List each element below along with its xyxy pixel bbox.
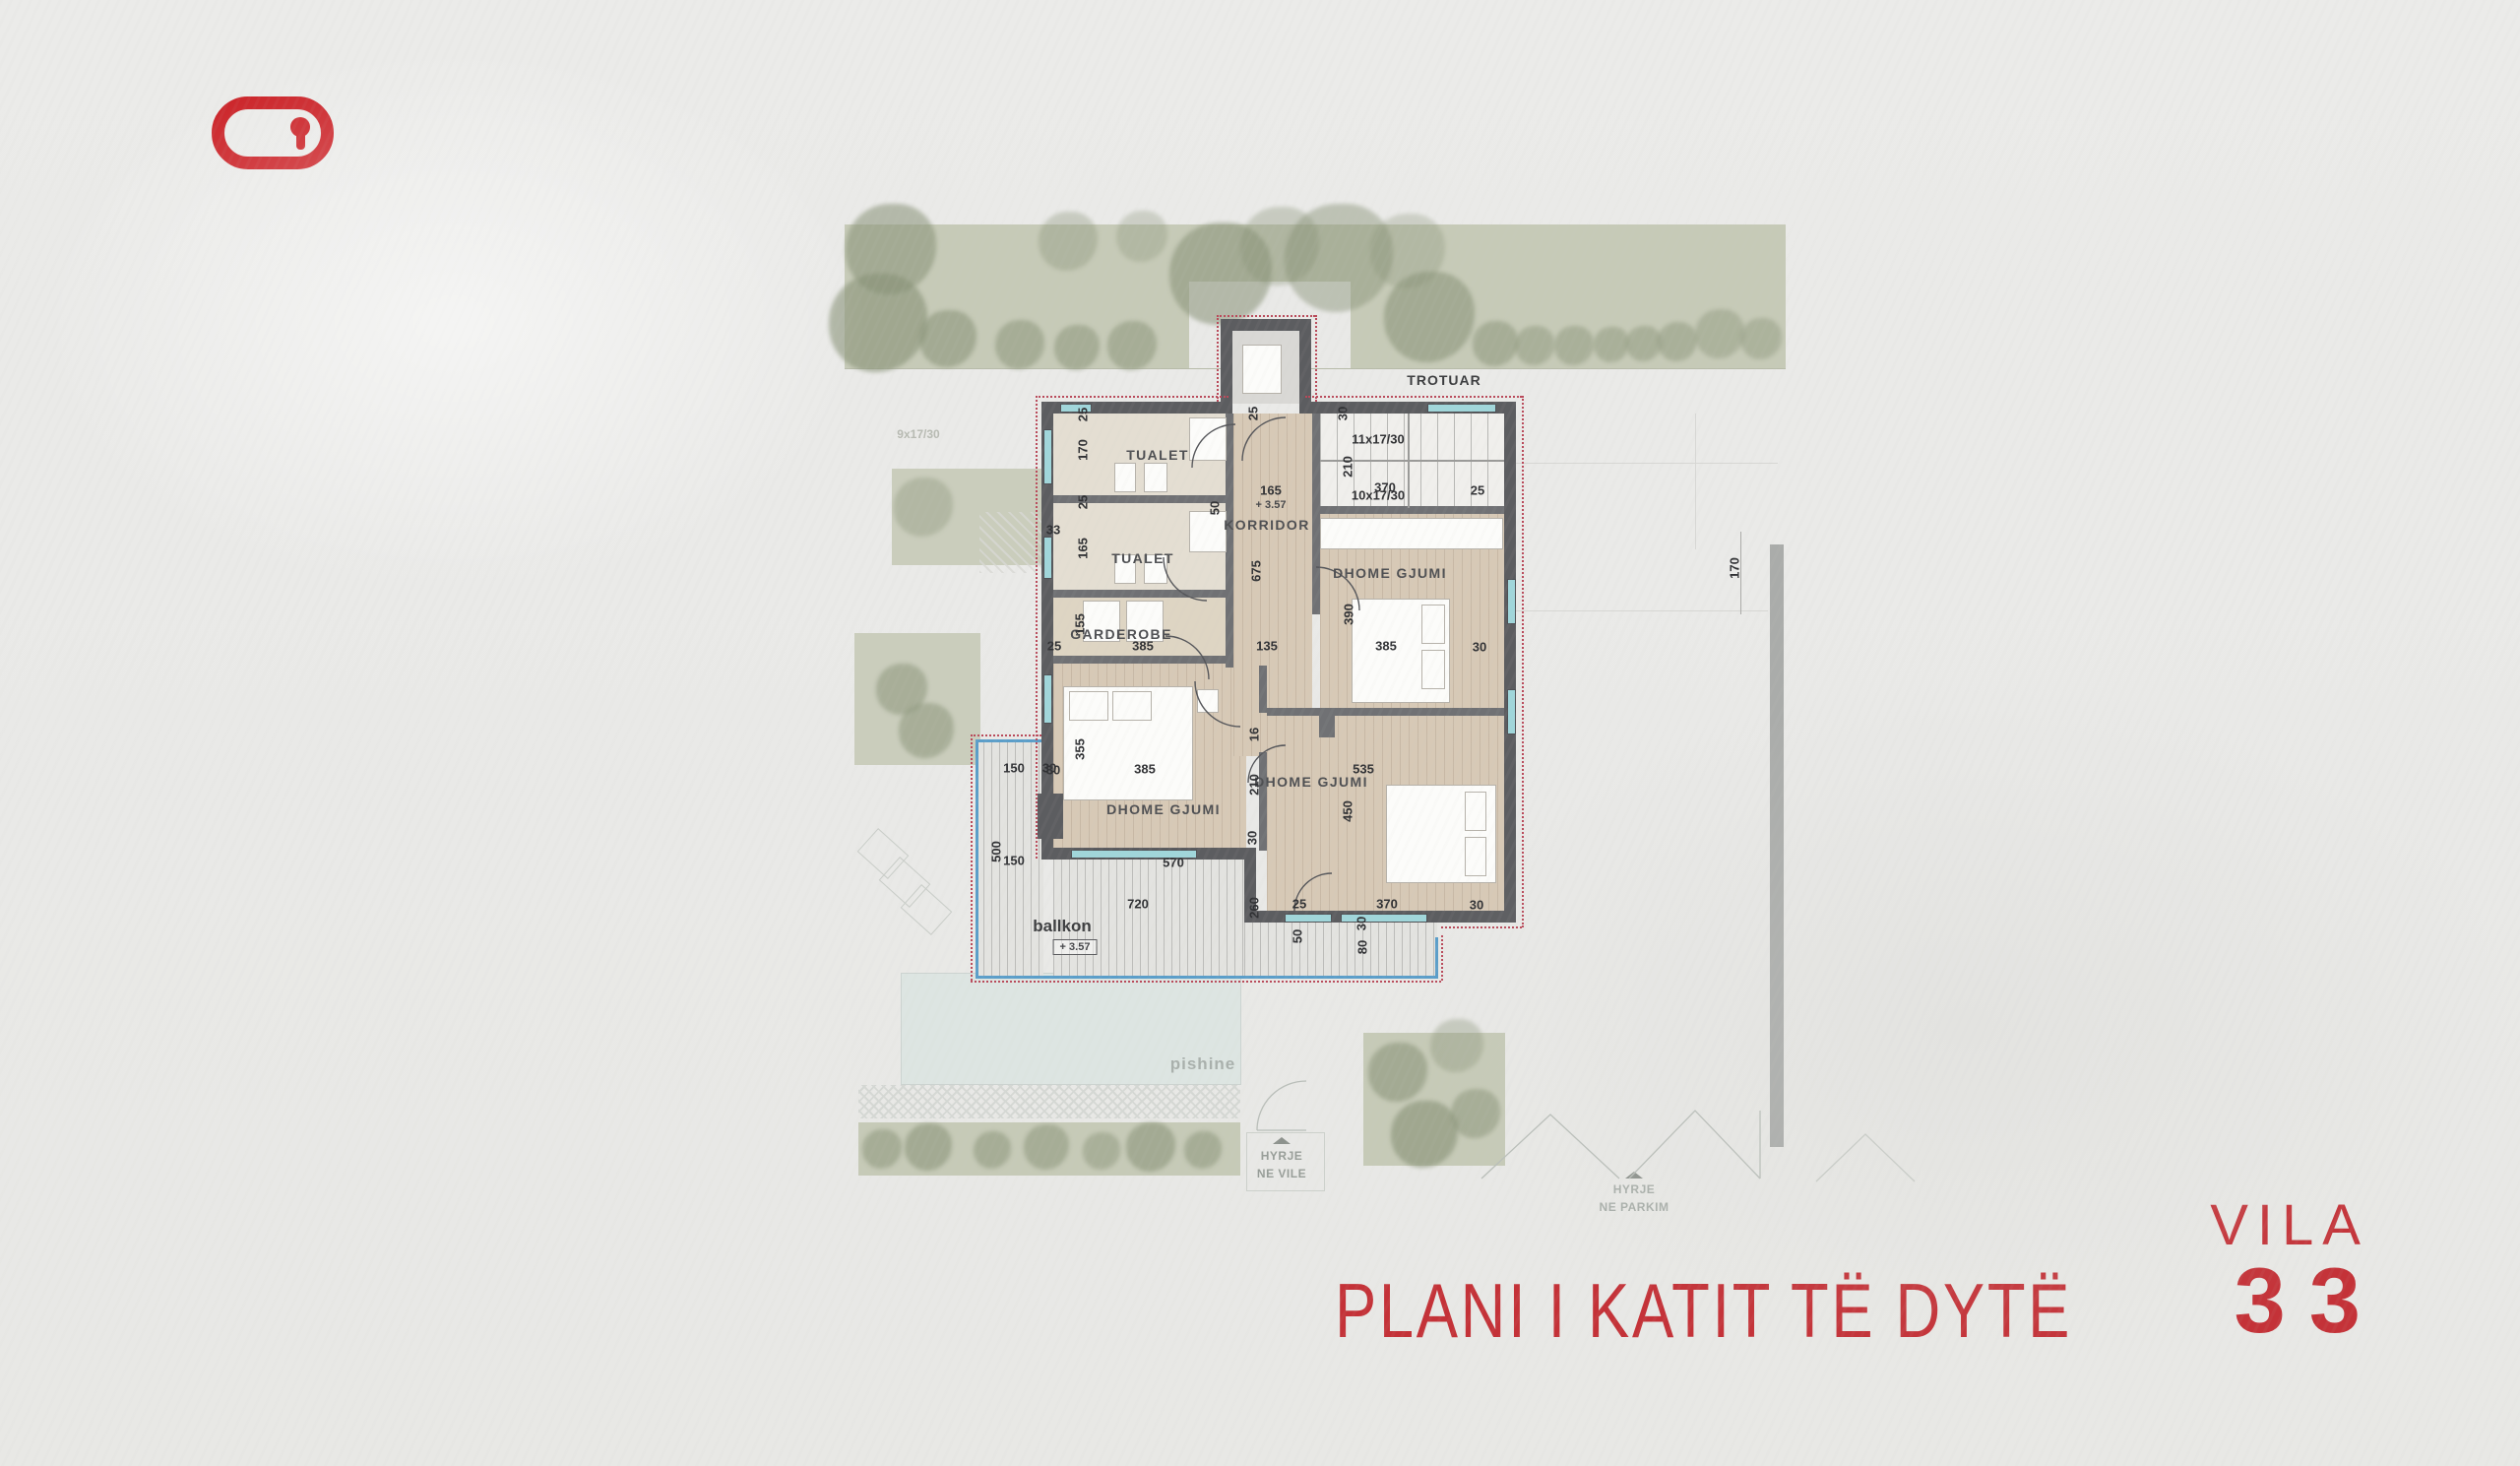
gate-and-ramp-lines bbox=[1257, 1081, 1915, 1181]
dimension-label: 170 bbox=[1728, 557, 1742, 579]
dimension-label: 30 bbox=[1473, 640, 1486, 655]
entry-label: NE VILE bbox=[1257, 1167, 1306, 1180]
dimension-label: 30 bbox=[1042, 761, 1056, 776]
dimension-label: 260 bbox=[1247, 897, 1262, 919]
entry-label: HYRJE bbox=[1261, 1149, 1303, 1163]
dimension-label: 165 bbox=[1076, 538, 1091, 559]
entry-label: NE PARKIM bbox=[1600, 1200, 1669, 1214]
room-label: DHOME GJUMI bbox=[1106, 801, 1221, 817]
dimension-label: 170 bbox=[1076, 439, 1091, 461]
dimension-label: 675 bbox=[1249, 560, 1264, 582]
pool-label: pishine bbox=[1170, 1054, 1236, 1074]
vila-number: 33 bbox=[2210, 1256, 2384, 1344]
dimension-label: 370 bbox=[1376, 897, 1398, 912]
dimension-label: 25 bbox=[1047, 639, 1061, 654]
vila-caption: VILA 33 bbox=[2210, 1197, 2361, 1344]
dimension-label: 25 bbox=[1292, 897, 1306, 912]
dimension-label: 25 bbox=[1246, 407, 1261, 420]
dimension-label: 210 bbox=[1341, 456, 1355, 478]
dimension-label: 11x17/30 bbox=[1352, 432, 1405, 447]
dimension-label: 570 bbox=[1163, 856, 1184, 870]
balcony-label: ballkon bbox=[1033, 917, 1092, 936]
dimension-label: 370 bbox=[1374, 480, 1396, 495]
room-label: DHOME GJUMI bbox=[1333, 565, 1447, 581]
dimension-label: 150 bbox=[1003, 854, 1025, 868]
dimension-label: 50 bbox=[1208, 501, 1223, 515]
dimension-label: 135 bbox=[1256, 639, 1278, 654]
dimension-label: 30 bbox=[1354, 917, 1369, 930]
dimension-label: 50 bbox=[1291, 929, 1305, 943]
dimension-label: 385 bbox=[1134, 762, 1156, 777]
dimension-label: 30 bbox=[1336, 407, 1351, 420]
dimension-label: 385 bbox=[1375, 639, 1397, 654]
dimension-label: 25 bbox=[1076, 408, 1091, 421]
entry-label: HYRJE bbox=[1613, 1182, 1656, 1196]
dimension-label: 385 bbox=[1132, 639, 1154, 654]
dimension-label: 16 bbox=[1247, 728, 1262, 741]
dimension-label: 33 bbox=[1046, 523, 1060, 538]
dimension-label: 30 bbox=[1245, 831, 1260, 845]
room-label: TUALET bbox=[1126, 447, 1189, 463]
level-label: + 3.57 bbox=[1256, 499, 1287, 511]
dimension-label: 450 bbox=[1341, 800, 1355, 822]
dimension-label: 720 bbox=[1127, 897, 1149, 912]
dimension-label: 165 bbox=[1260, 483, 1282, 498]
room-label: DHOME GJUMI bbox=[1254, 774, 1368, 790]
dimension-label: 390 bbox=[1342, 604, 1356, 625]
dimension-label: 25 bbox=[1471, 483, 1484, 498]
dimension-label: 155 bbox=[1073, 613, 1088, 635]
dimension-label: 535 bbox=[1353, 762, 1374, 777]
vila-word: VILA bbox=[2210, 1197, 2369, 1254]
room-label: TUALET bbox=[1111, 550, 1174, 566]
dimension-label: 30 bbox=[1470, 898, 1483, 913]
level-label: + 3.57 bbox=[1053, 939, 1098, 955]
site-label: TROTUAR bbox=[1407, 372, 1480, 388]
stair-note: 9x17/30 bbox=[897, 427, 939, 441]
dimension-label: 150 bbox=[1003, 761, 1025, 776]
dimension-label: 355 bbox=[1073, 738, 1088, 760]
room-label: KORRIDOR bbox=[1224, 517, 1309, 533]
plan-title: PLANI I KATIT TË DYTË bbox=[1335, 1268, 2072, 1356]
floor-plan-canvas: TUALETTUALETGARDEROBEKORRIDORDHOME GJUMI… bbox=[0, 0, 2520, 1466]
dimension-label: 80 bbox=[1355, 940, 1370, 954]
dimension-label: 210 bbox=[1247, 774, 1262, 796]
dimension-label: 500 bbox=[989, 841, 1004, 862]
dimension-label: 25 bbox=[1076, 495, 1091, 509]
